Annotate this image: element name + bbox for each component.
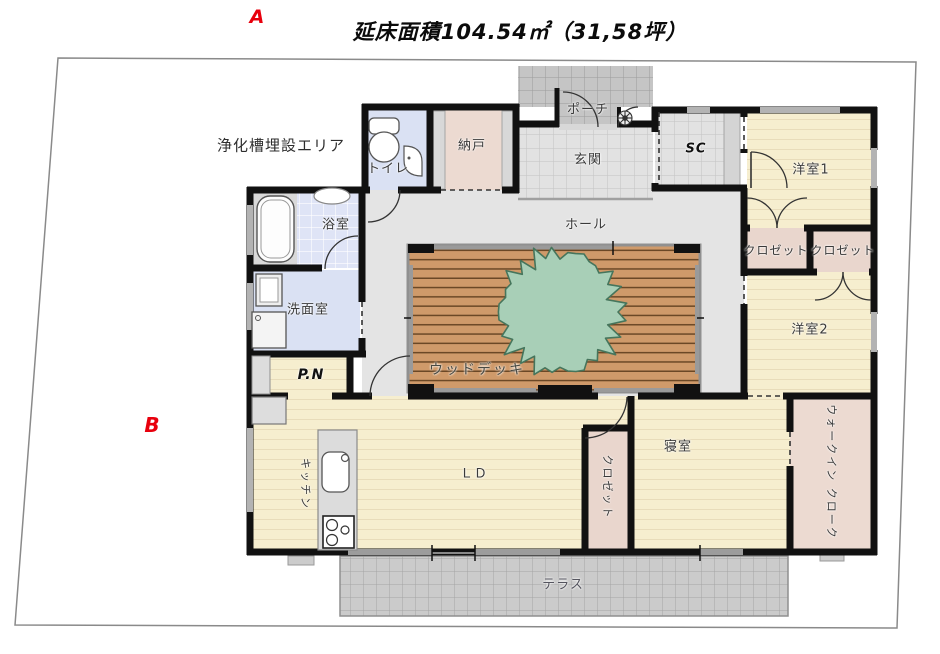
marker-b: B (144, 413, 159, 437)
room-label-toilet: トイレ (367, 158, 409, 177)
room-label-closet-b: クロゼット (810, 242, 875, 259)
room-label-closet-a: クロゼット (743, 242, 808, 259)
room-label-bathroom: 浴室 (322, 214, 350, 233)
room-label-hall: ホール (565, 214, 607, 233)
room-label-porch: ポーチ (567, 99, 609, 118)
master-bedroom-floor (631, 396, 790, 552)
room-label-bedroom2: 洋室2 (791, 319, 828, 338)
room-label-kitchen: キッチン (298, 458, 314, 510)
room-label-pantry: P.N (298, 367, 325, 383)
kitchen-counter (318, 430, 357, 550)
page-title: 延床面積104.54㎡（31,58坪） (353, 16, 687, 46)
septic-area-label: 浄化槽埋設エリア (217, 135, 345, 156)
room-label-living-dining: ＬＤ (460, 463, 488, 482)
room-label-walk-in-closet: ウォークイン クローク (824, 404, 840, 540)
room-label-shoe-closet: SC (686, 142, 707, 157)
room-label-entrance: 玄関 (574, 149, 602, 168)
pantry-shelf (252, 356, 270, 394)
marker-a: A (250, 6, 265, 28)
room-label-bedroom1: 洋室1 (792, 159, 829, 178)
room-label-storage: 納戸 (458, 135, 486, 154)
floor-plan-page: 延床面積104.54㎡（31,58坪） A B 浄化槽埋設エリア ポーチ 玄関 … (0, 0, 940, 654)
room-label-washroom: 洗面室 (287, 299, 329, 318)
door-handle-icon (618, 111, 632, 125)
room-label-closet-c: クロゼット (600, 455, 616, 520)
room-label-terrace: テラス (542, 574, 584, 593)
room-label-master-bedroom: 寝室 (664, 436, 692, 455)
refrigerator-space (252, 397, 286, 424)
room-label-wood-deck: ウッドデッキ (429, 359, 525, 379)
